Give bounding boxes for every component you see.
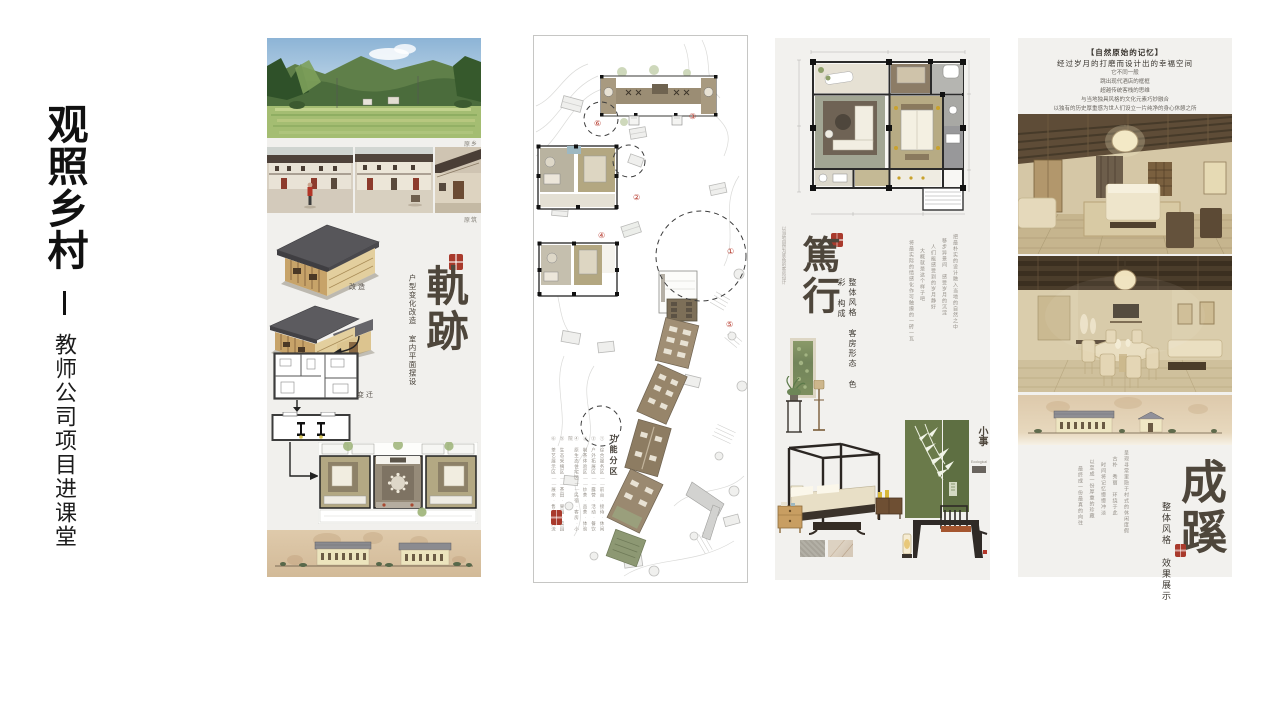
potted-plant — [781, 376, 807, 434]
board3-side-note: 以当地自然为底色的客房设计 — [781, 226, 787, 306]
detail-plan-a — [600, 75, 718, 125]
detail-plan-c — [538, 242, 620, 297]
central-complex — [606, 271, 724, 567]
intro-line: 超越传统客栈的思维 — [1018, 87, 1232, 96]
arrow-elbow — [285, 442, 319, 482]
zone-marker-3: ③ — [689, 113, 696, 121]
detail-plan-b — [537, 145, 619, 210]
zone-marker-4: ④ — [598, 232, 605, 240]
board3-subtitle: 整体风格 客房形态 色彩 构成 — [836, 278, 858, 398]
slide-title-block: 观照乡村 教师公司项目进课堂 — [38, 95, 108, 575]
colored-floorplan — [318, 442, 478, 524]
plan-caption-transition: 变迁 — [357, 390, 375, 400]
legend-item: ④ 原生态住宅区——民宿·客房·小院 — [568, 436, 580, 532]
intro-line: 以独有的历史厚重感为世人们设立一片纯净的身心休憩之所 — [1018, 105, 1232, 114]
elevation-band-4 — [1018, 395, 1232, 445]
legend-item: ① 综合服务区——前台·接待·休闲 — [599, 436, 605, 532]
model-caption-renovation: 改造 — [349, 282, 367, 292]
sketch-floorplan-2 — [271, 412, 351, 442]
elevation-main-building — [1054, 411, 1114, 433]
legend-item: ③ 制茶体验区——炒茶·品茶·体验 — [582, 436, 588, 532]
board-trajectory[interactable]: 原乡 — [267, 38, 481, 577]
seal-stamp — [1175, 544, 1186, 557]
elevation-building-right — [399, 543, 451, 565]
mini-text-block — [972, 466, 986, 473]
mini-caption: 小事 — [975, 426, 987, 446]
zoning-legend-title: 功能分区 — [608, 434, 618, 478]
zone-marker-6: ⑥ — [594, 120, 601, 128]
board-siteplan[interactable]: ① ② ③ ④ ⑤ ⑥ 功能分区 ① 综合服务区——前台·接待·休闲 ② 户外拓… — [533, 35, 748, 583]
material-swatch-stone — [800, 540, 825, 557]
intro-line: 【自然原始的记忆】 — [1018, 47, 1232, 58]
board-guestroom[interactable]: 篤行 整体风格 客房形态 色彩 构成 以当地自然为底色的客房设计 把最朴实的设计… — [775, 38, 990, 580]
desk-and-chair — [913, 500, 989, 562]
old-buildings-photo-row — [267, 147, 481, 213]
nightstand — [777, 502, 803, 534]
elevation-band — [267, 530, 481, 577]
board4-title: 成蹊 — [1176, 458, 1224, 558]
board4-paragraph: 呈现寻常里隐于村式的休闲度假 古朴 秀丽 环绕于此 时间将记忆慢慢冲淡 以至成一… — [1076, 450, 1129, 560]
old-building-photo-2 — [355, 147, 433, 213]
title-dash — [63, 291, 66, 315]
old-building-photo-1 — [267, 147, 353, 213]
board1-subtitle: 户型变化改造 室内平面摆设 — [407, 274, 417, 404]
village-landscape-photo — [267, 38, 481, 138]
board3-title: 篤行 — [797, 235, 837, 317]
mini-caption-sub: Ecological — [971, 460, 987, 464]
guestroom-floorplan — [793, 48, 975, 218]
slide-title: 观照乡村 — [42, 103, 86, 271]
board1-title: 軌跡 — [421, 264, 465, 354]
table-lantern — [900, 532, 914, 562]
bedroom-rendering — [1018, 114, 1232, 254]
material-swatch-marble — [828, 540, 853, 557]
board4-subtitle: 整体风格 效果展示 — [1160, 502, 1172, 612]
sketch-floorplan-1 — [273, 352, 359, 400]
board4-intro: 【自然原始的记忆】 经过岁月的打磨而设计出的幸福空间 它不同一般 跳出现代酒店的… — [1018, 47, 1232, 114]
dining-rendering — [1018, 256, 1232, 392]
slide-subtitle: 教师公司项目进课堂 — [52, 333, 77, 549]
elevation-building-left — [315, 542, 371, 565]
intro-line: 与当地独具风格的文化元素巧妙融合 — [1018, 96, 1232, 105]
board-renderings[interactable]: 【自然原始的记忆】 经过岁月的打磨而设计出的幸福空间 它不同一般 跳出现代酒店的… — [1018, 38, 1232, 577]
board3-paragraph: 把最朴实的设计融入当地的自然之中 移步异景间 感受岁月的沉淀 人们能感受到的岁月… — [907, 234, 958, 352]
zone-marker-1: ① — [727, 248, 734, 256]
photo-caption-buildings: 原筑 — [464, 215, 478, 224]
intro-line: 经过岁月的打磨而设计出的幸福空间 — [1018, 58, 1232, 69]
old-building-photo-3 — [435, 147, 481, 213]
sideboard — [875, 490, 903, 520]
floor-lamp — [811, 380, 827, 434]
legend-item: ② 户外拓展区——露营·活动·餐饮 — [591, 436, 597, 532]
zone-marker-5: ⑤ — [726, 321, 733, 329]
arrow-down-small — [293, 400, 301, 412]
seal-stamp — [551, 510, 562, 525]
intro-line: 它不同一般 — [1018, 69, 1232, 78]
intro-line: 跳出现代酒店的框框 — [1018, 78, 1232, 87]
zone-marker-2: ② — [633, 194, 640, 202]
